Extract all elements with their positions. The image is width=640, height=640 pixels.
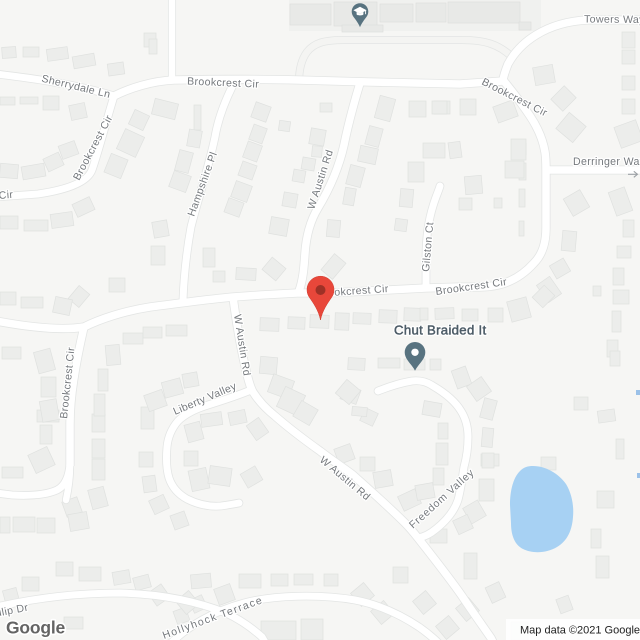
svg-text:Towers Way: Towers Way	[584, 14, 640, 27]
svg-text:Map data ©2021 Google: Map data ©2021 Google	[520, 625, 640, 637]
svg-text:Google: Google	[6, 618, 66, 638]
svg-text:Cir: Cir	[0, 189, 14, 202]
svg-text:Chut Braided It: Chut Braided It	[394, 323, 487, 338]
svg-text:Derringer Way: Derringer Way	[573, 156, 640, 168]
